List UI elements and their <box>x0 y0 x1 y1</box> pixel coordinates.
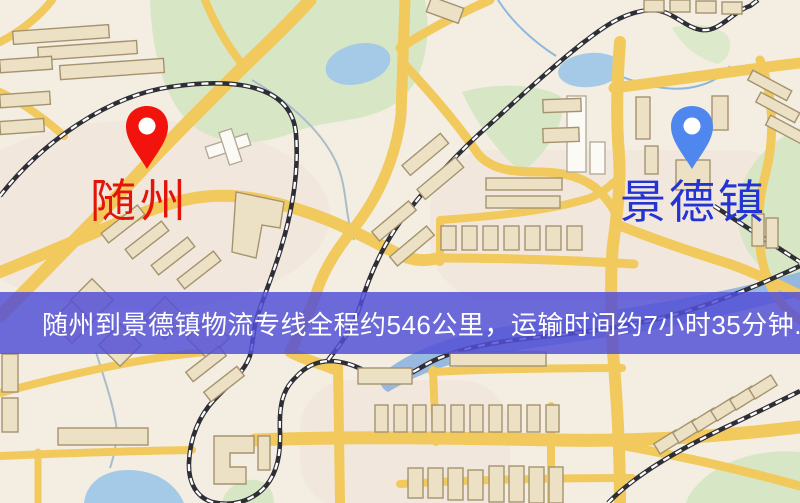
origin-label: 随州 <box>90 178 190 224</box>
route-info-banner: 随州到景德镇物流专线全程约546公里，运输时间约7小时35分钟. <box>0 292 800 354</box>
route-info-text: 随州到景德镇物流专线全程约546公里，运输时间约7小时35分钟. <box>42 305 800 342</box>
map-art <box>0 0 800 503</box>
destination-pin-icon[interactable] <box>668 104 716 170</box>
map-canvas[interactable]: 随州到景德镇物流专线全程约546公里，运输时间约7小时35分钟. 随州 景德镇 <box>0 0 800 503</box>
destination-label: 景德镇 <box>620 179 767 225</box>
origin-pin-icon[interactable] <box>123 104 171 170</box>
